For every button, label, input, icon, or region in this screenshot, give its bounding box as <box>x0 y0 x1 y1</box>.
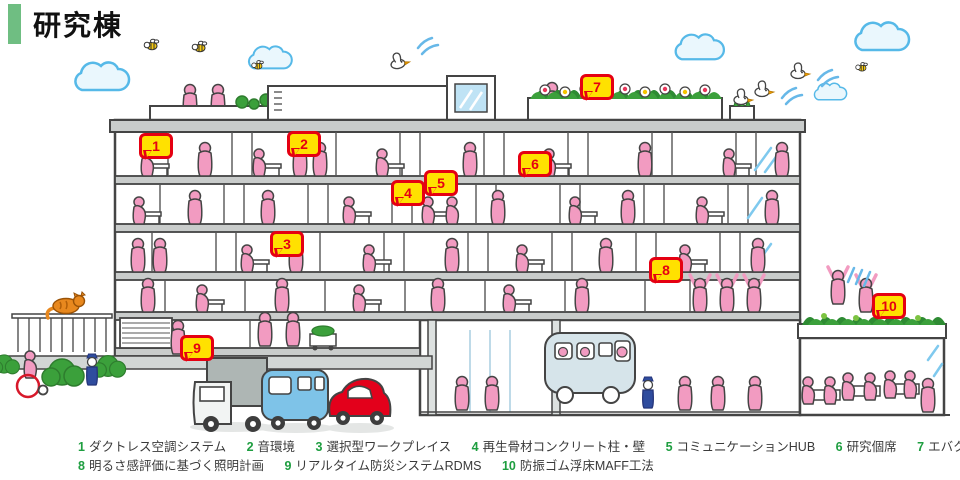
red-car <box>329 379 390 425</box>
marker-3: 3 <box>270 231 304 257</box>
feature-legend: 1ダクトレス空調システム 2音環境 3選択型ワークプレイス 4再生骨材コンクリー… <box>78 438 960 476</box>
bee-icon <box>856 63 868 71</box>
bird-icon <box>734 89 753 105</box>
marker-2: 2 <box>287 131 321 157</box>
marker-4: 4 <box>391 180 425 206</box>
page-title-block: 研究棟 <box>8 4 123 44</box>
annex-wing <box>798 267 950 415</box>
bee-icon <box>192 41 207 52</box>
bee-icon <box>144 39 159 50</box>
legend-item-5: 5コミュニケーションHUB <box>666 440 816 454</box>
marker-5: 5 <box>424 170 458 196</box>
marker-7: 7 <box>580 74 614 100</box>
marker-6: 6 <box>518 151 552 177</box>
legend-item-7: 7エバクールガーデン <box>917 440 960 454</box>
legend-item-1: 1ダクトレス空調システム <box>78 440 226 454</box>
legend-item-6: 6研究個席 <box>836 440 897 454</box>
page: 研究棟 1 2 3 4 5 6 7 8 9 10 1ダクトレス空調システム 2音… <box>0 0 960 480</box>
bird-icon <box>755 81 774 97</box>
page-title: 研究棟 <box>33 4 123 44</box>
bird-icon <box>389 51 410 70</box>
blue-van <box>262 370 328 430</box>
legend-item-4: 4再生骨材コンクリート柱・壁 <box>472 440 645 454</box>
marker-8: 8 <box>649 257 683 283</box>
penthouse <box>268 86 450 121</box>
building-cutaway-illustration <box>0 0 960 480</box>
title-accent-bar <box>8 4 21 44</box>
legend-item-3: 3選択型ワークプレイス <box>316 440 452 454</box>
marker-10: 10 <box>872 293 906 319</box>
marker-9: 9 <box>180 335 214 361</box>
marker-1: 1 <box>139 133 173 159</box>
legend-row-2: 8明るさ感評価に基づく照明計画 9リアルタイム防災システムRDMS 10防振ゴム… <box>78 457 960 476</box>
legend-item-2: 2音環境 <box>247 440 295 454</box>
legend-item-8: 8明るさ感評価に基づく照明計画 <box>78 459 264 473</box>
shuttle-bus <box>545 333 635 403</box>
legend-row-1: 1ダクトレス空調システム 2音環境 3選択型ワークプレイス 4再生骨材コンクリー… <box>78 438 960 457</box>
legend-item-9: 9リアルタイム防災システムRDMS <box>284 459 481 473</box>
security-guard <box>87 354 98 385</box>
legend-item-10: 10防振ゴム浮床MAFF工法 <box>502 459 654 473</box>
bird-icon <box>791 63 810 79</box>
